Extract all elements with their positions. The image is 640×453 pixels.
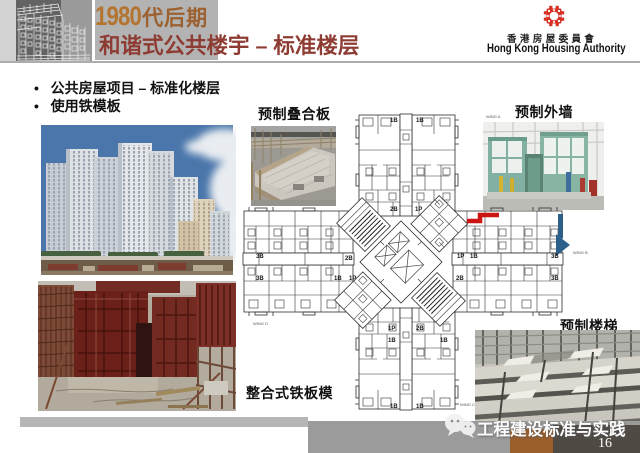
svg-text:2B: 2B (416, 326, 424, 332)
svg-text:1B: 1B (390, 404, 398, 410)
svg-text:3B: 3B (551, 276, 559, 282)
svg-text:WING B: WING B (573, 250, 588, 255)
svg-text:3B: 3B (256, 254, 264, 260)
svg-text:WING A: WING A (486, 114, 501, 119)
svg-text:1P: 1P (349, 276, 356, 282)
svg-text:1B: 1B (390, 118, 398, 124)
svg-text:WING D: WING D (253, 321, 268, 326)
svg-text:2B: 2B (345, 256, 353, 262)
svg-text:1B: 1B (334, 276, 342, 282)
svg-text:1B: 1B (416, 404, 424, 410)
svg-text:2B: 2B (390, 207, 398, 213)
svg-text:1B: 1B (470, 254, 478, 260)
svg-text:3B: 3B (256, 276, 264, 282)
svg-text:1B: 1B (388, 338, 396, 344)
svg-text:1P: 1P (457, 254, 464, 260)
svg-text:3B: 3B (551, 254, 559, 260)
svg-text:WING C: WING C (460, 402, 475, 407)
svg-text:1B: 1B (440, 338, 448, 344)
svg-text:2B: 2B (456, 276, 464, 282)
svg-text:1B: 1B (416, 118, 424, 124)
svg-text:1P: 1P (415, 207, 422, 213)
svg-text:1P: 1P (388, 326, 395, 332)
